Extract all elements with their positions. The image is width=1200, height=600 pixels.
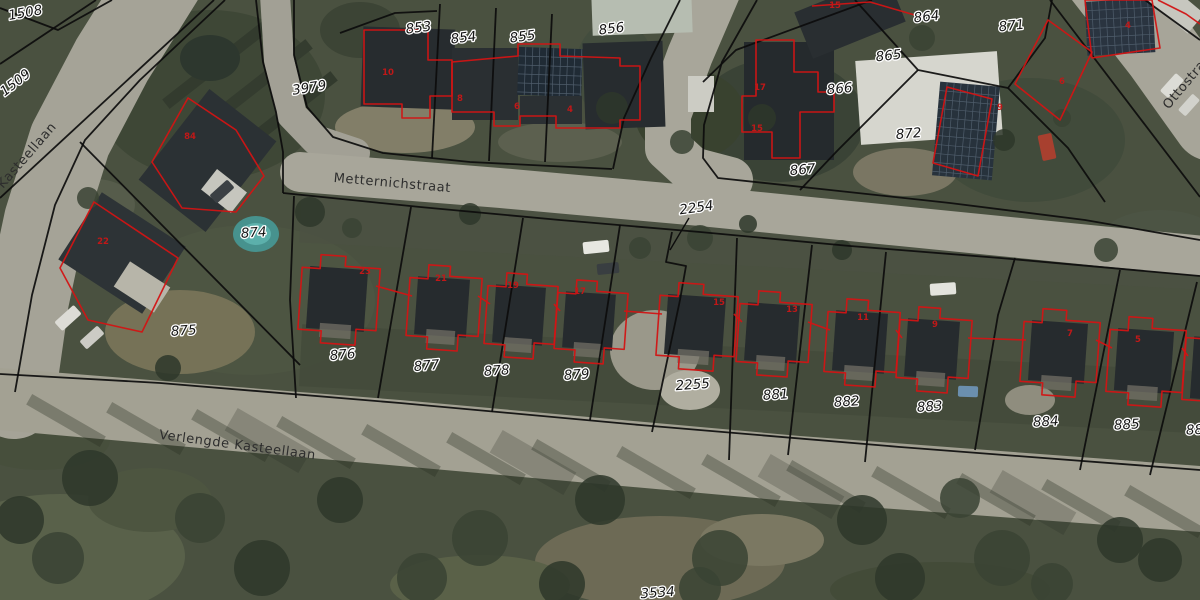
- tree: [670, 130, 694, 154]
- tree: [317, 477, 363, 523]
- house-number-label: 9: [932, 320, 938, 330]
- car: [958, 386, 978, 398]
- tree: [459, 203, 481, 225]
- parcel-number-label: 883: [916, 398, 943, 416]
- car: [930, 282, 957, 296]
- tree: [832, 240, 852, 260]
- house-number-label: 9: [997, 103, 1003, 113]
- tree: [837, 495, 887, 545]
- tree: [32, 532, 84, 584]
- car: [596, 262, 619, 275]
- house-number-label: 4: [567, 105, 573, 115]
- tree: [1097, 517, 1143, 563]
- tree: [993, 129, 1015, 151]
- parcel-number-label: 856: [598, 20, 626, 39]
- tree: [940, 478, 980, 518]
- parcel-number-label: 874: [240, 224, 267, 242]
- house-number-label: 15: [713, 298, 725, 308]
- parcel-number-label: 872: [895, 125, 922, 143]
- tree: [452, 510, 508, 566]
- parcel-number-label: 886: [1185, 421, 1200, 438]
- house-number-label: 23: [359, 267, 371, 277]
- house-number-label: 22: [97, 237, 109, 247]
- house-number-label: 17: [754, 83, 766, 93]
- parcel-number-label: 864: [913, 8, 940, 27]
- tree: [629, 237, 651, 259]
- tree: [687, 225, 713, 251]
- house-number-label: 11: [857, 313, 869, 323]
- tree: [1138, 538, 1182, 582]
- house-number-label: 8: [457, 94, 463, 104]
- tree: [739, 215, 757, 233]
- tree: [175, 493, 225, 543]
- parcel-number-label: 853: [405, 19, 433, 38]
- cadastral-map-view[interactable]: 1508150939798538548558568648658668678718…: [0, 0, 1200, 600]
- tree: [234, 540, 290, 596]
- parcel-number-label: 882: [833, 393, 860, 411]
- house-number-label: 15: [751, 124, 763, 134]
- parcel-number-label: 879: [563, 366, 590, 384]
- tree: [1094, 238, 1118, 262]
- house-number-label: 19: [507, 281, 519, 291]
- house-number-label: 6: [1059, 77, 1065, 87]
- tree: [77, 187, 99, 209]
- parcel-number-label: 877: [413, 357, 440, 375]
- house-number-label: 21: [435, 274, 447, 284]
- tree: [155, 355, 181, 381]
- parcel-number-label: 871: [998, 17, 1025, 36]
- tree: [909, 25, 935, 51]
- tree: [1053, 109, 1071, 127]
- parcel-number-label: 867: [789, 161, 816, 179]
- parcel-number-label: 865: [875, 47, 902, 66]
- parcel-number-label: 878: [483, 362, 510, 380]
- tree: [62, 450, 118, 506]
- parcel-number-label: 885: [1113, 416, 1140, 433]
- house-number-label: 17: [574, 287, 586, 297]
- parcel-number-label: 881: [762, 386, 789, 404]
- house-number-label: 10: [382, 68, 394, 78]
- tree: [575, 475, 625, 525]
- parcel-number-label: 854: [450, 29, 478, 48]
- parcel-number-label: 876: [329, 346, 356, 364]
- parcel-number-label: 3534: [640, 584, 675, 600]
- house-number-label: 84: [184, 132, 196, 142]
- house-number-label: 4: [1125, 21, 1131, 31]
- parcel-number-label: 866: [826, 80, 853, 98]
- tree: [295, 197, 325, 227]
- solar-roof: [1085, 0, 1156, 56]
- tree: [342, 218, 362, 238]
- parcel-number-label: 884: [1032, 413, 1059, 430]
- map-svg: 1508150939798538548558568648658668678718…: [0, 0, 1200, 600]
- tree: [974, 530, 1030, 586]
- parcel-number-label: 855: [509, 28, 537, 47]
- house-number-label: 15: [829, 1, 841, 11]
- house-number-label: 7: [1067, 329, 1073, 339]
- parcel-number-label: 2255: [675, 376, 710, 394]
- house-number-label: 13: [786, 305, 798, 315]
- parcel-number-label: 875: [170, 322, 197, 340]
- house-number-label: 6: [514, 102, 520, 112]
- house-number-label: 5: [1135, 335, 1141, 345]
